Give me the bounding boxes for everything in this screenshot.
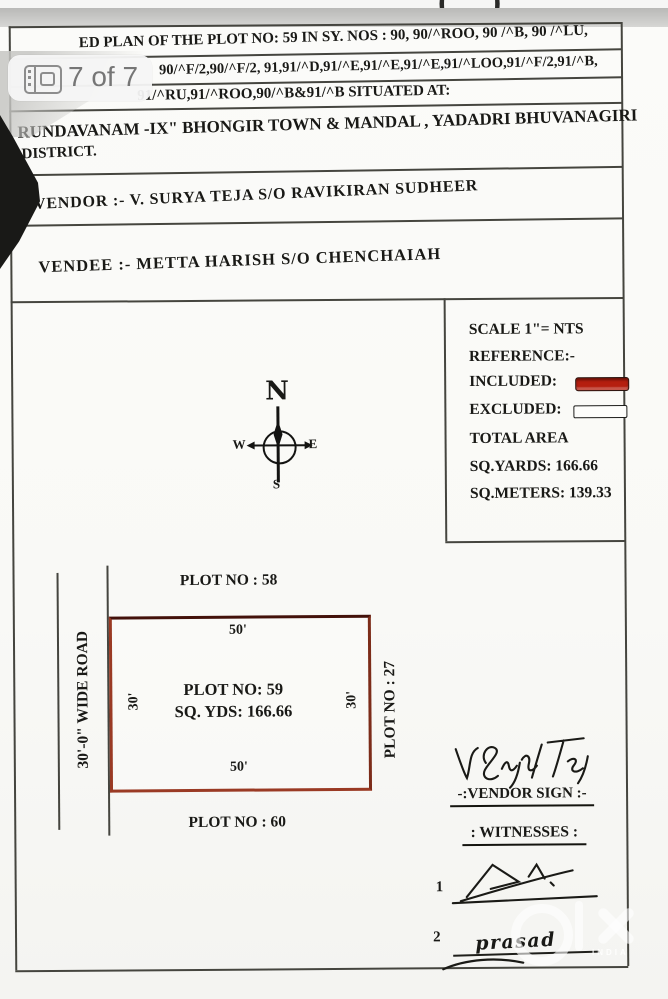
header-line-1: ED PLAN OF THE PLOT NO: 59 IN SY. NOS : … bbox=[79, 23, 588, 52]
compass-rose-icon: N W E S bbox=[239, 380, 320, 499]
header-line-2: 90/^F/2,90/^F/2, 91,91/^D,91/^E,91/^E,91… bbox=[159, 53, 598, 79]
border-line bbox=[10, 217, 623, 226]
bottom-dimension: 50' bbox=[159, 759, 319, 776]
photo-counter-badge[interactable]: 7 of 7 bbox=[8, 55, 152, 101]
vendor-line: VENDOR :- V. SURYA TEJA S/O RAVIKIRAN SU… bbox=[34, 177, 479, 214]
plot-60-label: PLOT NO : 60 bbox=[157, 813, 317, 832]
vendee-line: VENDEE :- METTA HARISH S/O CHENCHAIAH bbox=[38, 244, 441, 277]
compass-circle bbox=[263, 430, 297, 464]
plot-59-area: SQ. YDS: 166.66 bbox=[133, 701, 333, 722]
border-line bbox=[10, 166, 623, 176]
header-line-3: 91/^RU,91/^ROO,90/^B&91/^B SITUATED AT: bbox=[137, 83, 450, 105]
olx-watermark-o bbox=[511, 904, 573, 966]
header-line-5: DISTRICT. bbox=[21, 143, 97, 163]
photo-counter-text: 7 of 7 bbox=[68, 61, 138, 93]
legend-total-area: TOTAL AREA bbox=[470, 429, 569, 448]
legend-reference: REFERENCE:- bbox=[469, 347, 575, 366]
plot-59-title: PLOT NO: 59 bbox=[133, 679, 333, 700]
border-line bbox=[15, 966, 628, 972]
plot-27-label: PLOT NO : 27 bbox=[381, 645, 400, 775]
witness1-number: 1 bbox=[436, 879, 444, 896]
excluded-swatch bbox=[573, 405, 627, 418]
border-line bbox=[11, 297, 624, 303]
legend-scale: SCALE 1"= NTS bbox=[469, 320, 584, 339]
legend-sq-meters: SQ.METERS: 139.33 bbox=[470, 484, 612, 503]
header-line-4: RUNDAVANAM -IX" BHONGIR TOWN & MANDAL , … bbox=[17, 105, 637, 142]
legend-included-label: INCLUDED: bbox=[469, 372, 557, 391]
border-line bbox=[621, 22, 629, 966]
compass-south-label: S bbox=[273, 476, 280, 492]
right-dimension: 30' bbox=[344, 680, 360, 720]
compass-west-label: W bbox=[233, 437, 246, 453]
legend-box-border bbox=[445, 540, 625, 543]
road-line bbox=[57, 573, 61, 830]
compass-ew-line bbox=[254, 444, 306, 447]
top-dimension: 50' bbox=[158, 622, 318, 639]
west-arrow-icon bbox=[247, 442, 255, 450]
legend-sq-yards: SQ.YARDS: 166.66 bbox=[470, 457, 598, 476]
plot-plan-document: ED PLAN OF THE PLOT NO: 59 IN SY. NOS : … bbox=[0, 0, 668, 999]
olx-watermark-l bbox=[575, 901, 583, 951]
legend-excluded-label: EXCLUDED: bbox=[469, 400, 561, 419]
witness1-signature bbox=[451, 856, 601, 905]
gallery-icon bbox=[24, 65, 62, 94]
olx-watermark-india: INDIA bbox=[592, 948, 629, 957]
listing-photo-document[interactable]: ED PLAN OF THE PLOT NO: 59 IN SY. NOS : … bbox=[0, 27, 668, 999]
plot-58-label: PLOT NO : 58 bbox=[149, 571, 309, 590]
included-swatch bbox=[575, 377, 629, 391]
compass-east-label: E bbox=[309, 436, 318, 452]
olx-image-viewer: ( ) ED PLAN OF THE PLOT NO: 59 IN SY. NO… bbox=[0, 0, 668, 999]
legend-box-border bbox=[444, 298, 447, 541]
witnesses-label: : WITNESSES : bbox=[462, 823, 586, 846]
pen-stroke bbox=[441, 955, 526, 974]
vendor-sign-label: -:VENDOR SIGN :- bbox=[450, 785, 594, 807]
vendor-signature bbox=[452, 732, 592, 791]
wide-road-label: 30'-0" WIDE ROAD bbox=[74, 615, 93, 785]
compass-north-label: N bbox=[265, 376, 289, 406]
witness2-number: 2 bbox=[433, 929, 441, 946]
